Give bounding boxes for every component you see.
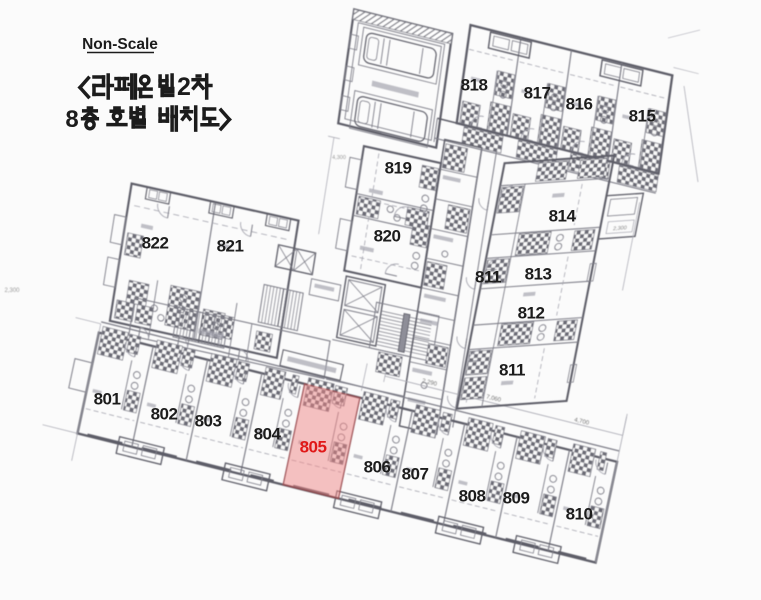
svg-text:807: 807 [402, 465, 429, 484]
svg-text:809: 809 [503, 489, 530, 508]
svg-text:813: 813 [525, 265, 552, 284]
svg-text:808: 808 [459, 487, 486, 506]
svg-text:8: 8 [65, 106, 78, 133]
svg-text:816: 816 [566, 95, 593, 114]
svg-text:812: 812 [518, 304, 545, 323]
svg-text:817: 817 [524, 84, 551, 103]
svg-text:801: 801 [94, 390, 121, 409]
svg-text:820: 820 [374, 227, 401, 246]
svg-text:803: 803 [195, 412, 222, 431]
svg-text:819: 819 [385, 159, 412, 178]
svg-text:810: 810 [566, 505, 593, 524]
svg-text:821: 821 [217, 237, 244, 256]
svg-text:802: 802 [151, 405, 178, 424]
svg-text:806: 806 [364, 458, 391, 477]
svg-text:818: 818 [461, 76, 488, 95]
svg-text:804: 804 [254, 425, 282, 444]
svg-text:2: 2 [177, 73, 191, 101]
svg-text:2,300: 2,300 [4, 288, 20, 294]
svg-text:Non-Scale: Non-Scale [82, 36, 158, 53]
svg-text:7,060: 7,060 [486, 394, 502, 404]
svg-text:805: 805 [300, 438, 327, 457]
svg-text:815: 815 [629, 107, 656, 126]
svg-text:822: 822 [142, 234, 169, 253]
svg-text:814: 814 [549, 207, 577, 226]
svg-text:811: 811 [499, 361, 525, 380]
svg-text:2,300: 2,300 [612, 225, 627, 232]
svg-text:2,290: 2,290 [422, 378, 438, 388]
svg-text:811: 811 [475, 268, 501, 287]
svg-text:4,300: 4,300 [332, 155, 346, 161]
